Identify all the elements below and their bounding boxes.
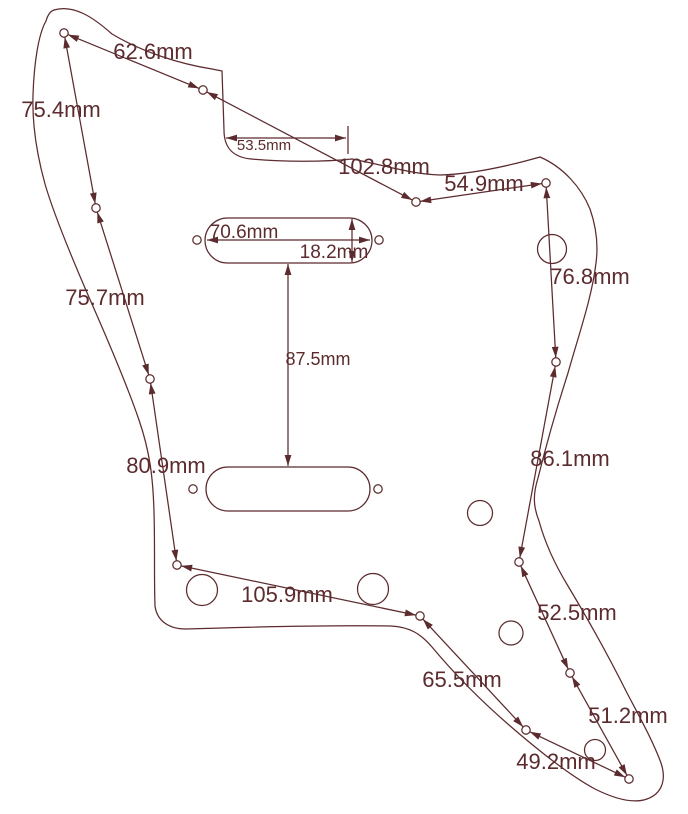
screw-hole [552,358,560,366]
dimension-arrow [401,192,412,200]
dimension-label: 75.7mm [65,285,144,310]
pickup-screw-hole [375,236,383,244]
screw-hole [515,558,523,566]
dimension-arrow [142,363,149,375]
screw-hole [173,561,181,569]
dimension-arrow [149,383,156,394]
dimension-label: 53.5mm [237,137,291,154]
pickguard-diagram: 62.6mm75.4mm53.5mm102.8mm54.9mm70.6mm18.… [0,0,688,814]
dimension-arrow [97,212,104,224]
dimension-arrow [285,264,292,275]
dimension-arrow [335,135,346,142]
dimension-arrow [404,610,415,617]
dimension-arrow [543,187,550,198]
screw-hole [522,726,530,734]
dimension-label: 52.5mm [537,600,616,625]
pickup-screw-hole [374,485,382,493]
screw-hole [416,612,424,620]
dimension-label: 54.9mm [444,171,523,196]
control-hole [358,574,389,605]
pickup-screw-hole [189,485,197,493]
dimension-arrow [188,81,199,88]
dimension-arrow [530,182,541,189]
dimension-label: 65.5mm [422,667,501,692]
pickguard-diagram-svg: 62.6mm75.4mm53.5mm102.8mm54.9mm70.6mm18.… [0,0,688,814]
dimension-arrow [68,35,79,42]
dimension-arrow [561,658,569,669]
pickup-screw-hole [193,236,201,244]
dimension-arrow [226,135,237,142]
dimension-label: 70.6mm [210,222,279,243]
dimension-label: 18.2mm [300,242,369,263]
control-hole [538,235,567,264]
dimension-label: 86.1mm [530,446,609,471]
screw-hole [60,29,68,37]
screw-hole [412,198,420,206]
dimension-label: 76.8mm [550,264,629,289]
dimension-label: 102.8mm [338,154,430,179]
dimension-label: 80.9mm [126,453,205,478]
dimension-arrow [552,347,559,358]
dimension-arrow [207,92,218,100]
control-hole [187,575,218,606]
dimension-arrow [550,366,557,377]
screw-hole [92,204,100,212]
dimension-label: 49.2mm [516,749,595,774]
dimension-arrow [530,732,541,740]
dimension-arrow [572,677,580,688]
screw-hole [199,86,207,94]
dimension-label: 105.9mm [241,582,333,607]
bridge-pickup-cutout [206,467,370,511]
dimension-label: 62.6mm [113,39,192,64]
screw-hole [625,775,633,783]
dimension-label: 51.2mm [588,703,667,728]
dimension-arrow [420,196,431,203]
control-hole [499,621,523,645]
dimension-label: 87.5mm [285,349,350,369]
dimension-arrow [90,192,97,203]
screw-hole [542,179,550,187]
dimension-arrow [63,37,70,48]
dimension-arrow [285,455,292,466]
control-hole [468,501,493,526]
dimension-arrow [349,219,356,230]
dimension-arrow [521,566,529,577]
dimension-label: 75.4mm [21,97,100,122]
dimension-arrow [518,546,525,557]
screw-hole [566,669,574,677]
screw-hole [146,375,154,383]
dimension-arrow [171,549,178,560]
dimension-arrow [181,565,192,572]
